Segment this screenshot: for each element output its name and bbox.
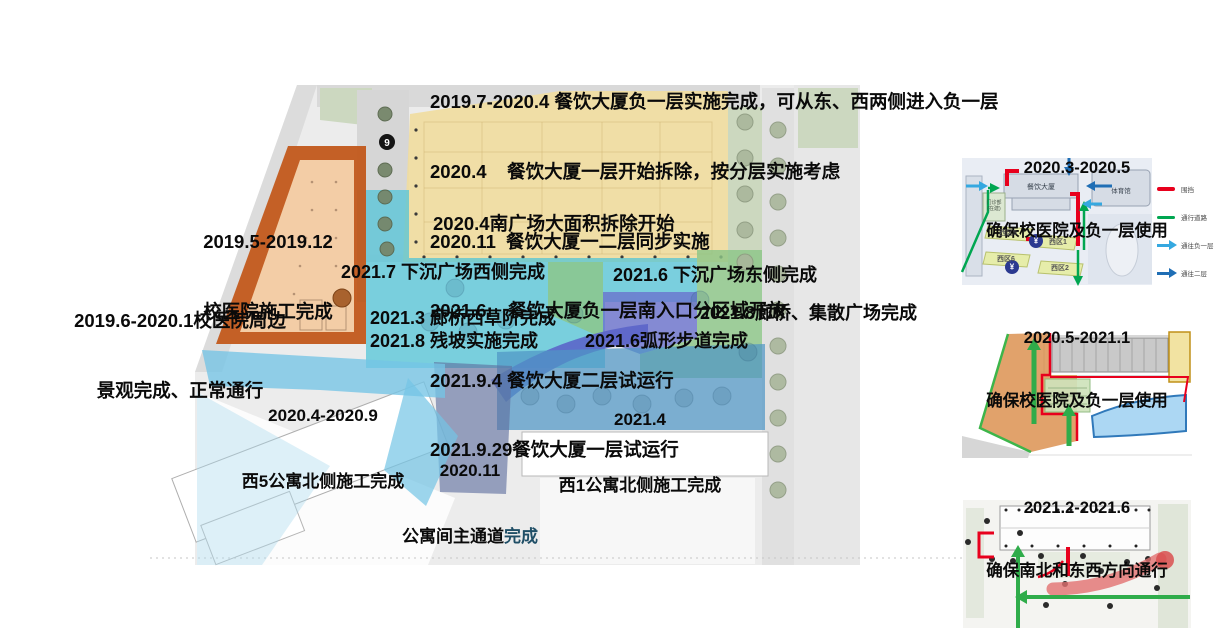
thumb1-zone1-label: 西区1 xyxy=(1049,237,1067,247)
legend-row-basement: 通往负一层 xyxy=(1157,239,1219,251)
thumb3-title-dates: 2021.2-2021.6 xyxy=(986,498,1168,519)
west1-label: 2021.4 西1公寓北侧施工完成 xyxy=(559,365,721,541)
legend-fence-label: 围挡 xyxy=(1181,184,1194,194)
hospital-surround-line1: 2019.6-2020.1校医院周边 xyxy=(74,309,286,332)
thumb3-title-text: 确保南北和东西方向通行 xyxy=(986,561,1168,582)
thumb1-dining-label: 餐饮大厦 xyxy=(1027,182,1055,192)
west5-line2: 西5公寓北侧施工完成 xyxy=(242,471,404,493)
west1-line2: 西1公寓北侧施工完成 xyxy=(559,475,721,497)
thumb1-zone2-label: 西区2 xyxy=(1051,263,1069,273)
corridor-line2: 公寓间主通道完成 xyxy=(402,526,538,548)
thumb2-title: 2020.5-2021.1 确保校医院及负一层使用 xyxy=(986,286,1168,454)
fence-line-icon xyxy=(1157,183,1177,195)
corridor-line2-done: 完成 xyxy=(504,527,538,546)
sunken-west-label: 2021.7 下沉广场西侧完成 xyxy=(341,261,545,284)
thumb3-title: 2021.2-2021.6 确保南北和东西方向通行 xyxy=(986,456,1168,624)
west5-label: 2020.4-2020.9 西5公寓北侧施工完成 xyxy=(242,361,404,537)
gallery-west-label: 2021.3 廊桥西草阶完成 xyxy=(370,307,556,330)
dining-line-1: 2019.7-2020.4 餐饮大厦负一层实施完成，可从东、西两侧进入负一层 xyxy=(430,90,998,113)
sunken-east-label: 2021.6 下沉广场东侧完成 xyxy=(613,264,817,287)
thumb1-yen-badge-1: ¥ xyxy=(1034,237,1038,246)
legend-row-level2: 通往二层 xyxy=(1157,267,1219,279)
thumb1-zone5-label: 西区5 xyxy=(999,228,1017,238)
legend-row-route: 通行道路 xyxy=(1157,211,1219,223)
route-line-icon xyxy=(1157,211,1177,223)
arc-path-label: 2021.6弧形步道完成 xyxy=(585,330,748,353)
west5-line1: 2020.4-2020.9 xyxy=(242,405,404,427)
legend-row-fence: 围挡 xyxy=(1157,183,1219,195)
thumb1-title-dates: 2020.3-2020.5 xyxy=(986,158,1168,179)
west1-line1: 2021.4 xyxy=(559,409,721,431)
legend-basement-label: 通往负一层 xyxy=(1181,240,1214,250)
dining-line-2: 2020.4 餐饮大厦一层开始拆除，按分层实施考虑 xyxy=(430,160,998,183)
corridor-line1: 2020.11 xyxy=(402,460,538,482)
slope-label: 2021.8 残坡实施完成 xyxy=(370,330,538,353)
hospital-line1: 2019.5-2019.12 xyxy=(203,230,333,253)
thumb1-yen-badge-2: ¥ xyxy=(1010,263,1014,272)
thumb2-title-dates: 2020.5-2021.1 xyxy=(986,328,1168,349)
thumb1-clinic-label2: (在建) xyxy=(987,205,1000,212)
corridor-label: 2020.11 公寓间主通道完成 xyxy=(402,416,538,592)
slide-canvas: 9 xyxy=(0,0,1221,628)
gallery-plaza-label: 2021.8廊桥、集散广场完成 xyxy=(700,302,917,325)
level2-arrow-icon xyxy=(1157,267,1177,279)
south-plaza-label: 2020.4南广场大面积拆除开始 xyxy=(433,212,675,235)
corridor-line2-black: 公寓间主通道 xyxy=(402,527,504,546)
thumb1-gym-label: 体育馆 xyxy=(1111,185,1131,195)
marker-9: 9 xyxy=(384,138,390,149)
basement-arrow-icon xyxy=(1157,239,1177,251)
thumb1-legend: 围挡 通行道路 通往负一层 通往二层 xyxy=(1157,183,1219,295)
legend-route-label: 通行道路 xyxy=(1181,212,1207,222)
legend-level2-label: 通往二层 xyxy=(1181,268,1207,278)
thumb2-title-text: 确保校医院及负一层使用 xyxy=(986,391,1168,412)
